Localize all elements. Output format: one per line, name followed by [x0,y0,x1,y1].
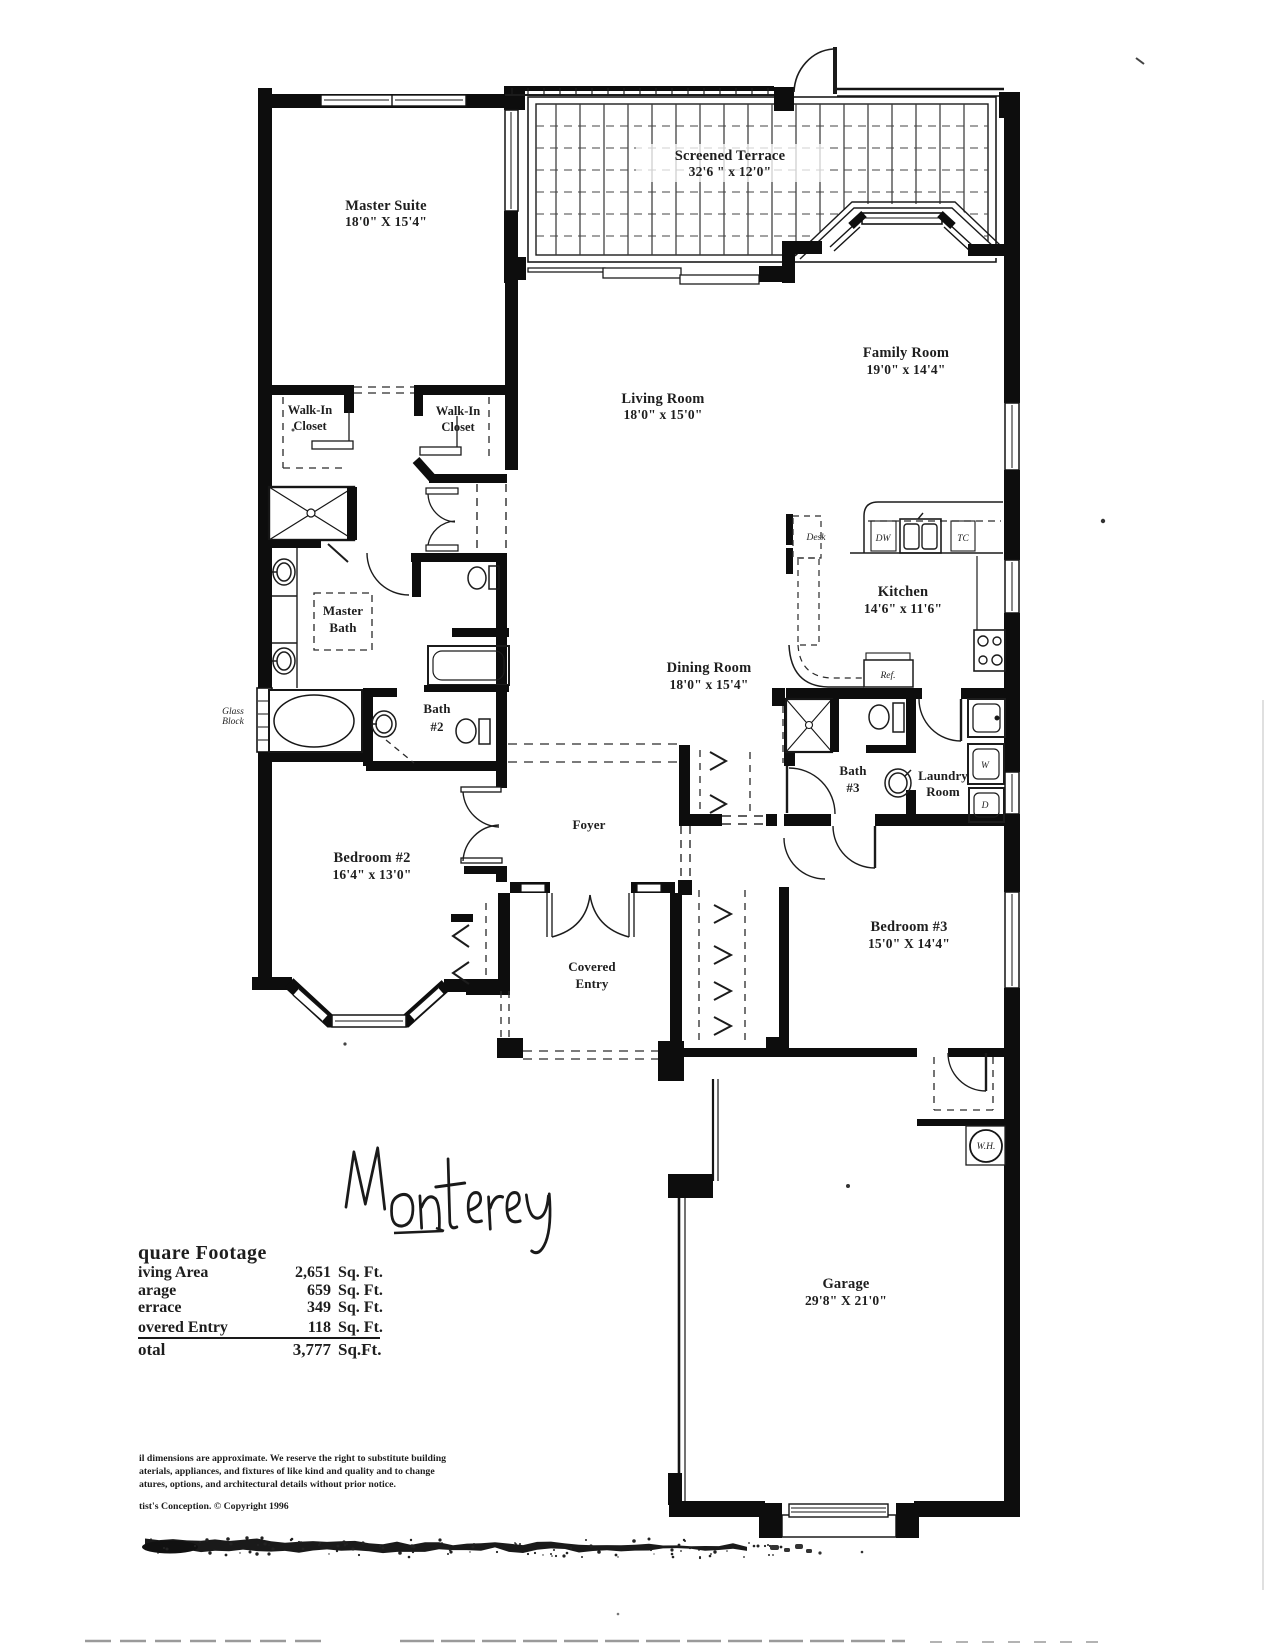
svg-text:29'8" X 21'0": 29'8" X 21'0" [805,1293,887,1308]
svg-text:Foyer: Foyer [573,817,606,832]
svg-text:otal: otal [138,1340,166,1359]
svg-text:#2: #2 [430,719,443,734]
svg-text:Desk: Desk [806,533,827,543]
svg-text:tist's Conception. © Copyright: tist's Conception. © Copyright 1996 [139,1501,289,1512]
svg-text:Closet: Closet [441,420,475,434]
svg-text:TC: TC [957,534,969,544]
svg-text:Bath: Bath [329,620,357,635]
svg-text:659: 659 [307,1282,331,1299]
svg-text:15'0" X 14'4": 15'0" X 14'4" [868,936,950,951]
svg-text:Laundry: Laundry [918,768,968,783]
svg-text:Sq.Ft.: Sq.Ft. [338,1340,381,1359]
svg-text:il dimensions are approximate.: il dimensions are approximate. We reserv… [139,1453,446,1464]
svg-text:Sq. Ft.: Sq. Ft. [338,1282,383,1299]
svg-text:#3: #3 [846,780,860,795]
svg-text:Bath: Bath [839,763,867,778]
svg-text:14'6" x 11'6": 14'6" x 11'6" [864,601,942,616]
svg-text:2,651: 2,651 [295,1264,331,1281]
svg-text:16'4" x 13'0": 16'4" x 13'0" [332,867,411,882]
svg-text:iving Area: iving Area [138,1264,208,1281]
svg-text:Bath: Bath [423,701,451,716]
svg-text:Master: Master [323,603,363,618]
svg-text:Bedroom #2: Bedroom #2 [333,850,410,866]
svg-text:Glass: Glass [222,707,244,717]
svg-text:Covered: Covered [568,959,616,974]
svg-text:Sq. Ft.: Sq. Ft. [338,1299,383,1316]
svg-text:quare Footage: quare Footage [138,1242,267,1264]
svg-text:Entry: Entry [576,976,609,991]
svg-text:Family Room: Family Room [863,345,949,361]
svg-text:Bedroom #3: Bedroom #3 [870,919,947,935]
svg-text:D: D [981,801,989,811]
svg-text:Walk-In: Walk-In [288,403,333,417]
svg-text:Closet: Closet [293,419,327,433]
svg-text:19'0" x 14'4": 19'0" x 14'4" [866,362,945,377]
svg-text:Walk-In: Walk-In [436,404,481,418]
svg-text:3,777: 3,777 [293,1340,332,1359]
svg-text:Dining Room: Dining Room [667,660,752,676]
svg-text:Master Suite: Master Suite [345,198,427,214]
svg-text:18'0" X 15'4": 18'0" X 15'4" [345,214,427,229]
svg-text:Ref.: Ref. [879,670,895,681]
svg-text:Garage: Garage [822,1276,869,1292]
svg-text:arage: arage [138,1282,176,1299]
svg-text:W: W [981,761,990,771]
svg-text:18'0" x 15'0": 18'0" x 15'0" [623,407,702,422]
svg-text:aterials, appliances, and fixt: aterials, appliances, and fixtures of li… [139,1466,435,1477]
svg-text:atures, options, and architect: atures, options, and architectural detai… [139,1479,396,1490]
svg-text:Screened Terrace: Screened Terrace [675,148,786,164]
svg-text:118: 118 [308,1319,331,1336]
svg-text:349: 349 [307,1299,331,1316]
svg-text:Room: Room [926,784,960,799]
svg-text:W.H.: W.H. [977,1142,996,1152]
svg-text:Kitchen: Kitchen [878,584,929,600]
svg-text:errace: errace [138,1299,182,1316]
svg-text:Sq. Ft.: Sq. Ft. [338,1319,383,1336]
svg-text:32'6 " x 12'0": 32'6 " x 12'0" [689,164,772,179]
svg-text:DW: DW [875,534,892,544]
svg-text:overed Entry: overed Entry [138,1319,228,1336]
svg-text:Living Room: Living Room [621,391,704,407]
svg-text:Block: Block [222,717,244,727]
svg-text:Sq. Ft.: Sq. Ft. [338,1264,383,1281]
svg-text:18'0" x 15'4": 18'0" x 15'4" [669,677,748,692]
